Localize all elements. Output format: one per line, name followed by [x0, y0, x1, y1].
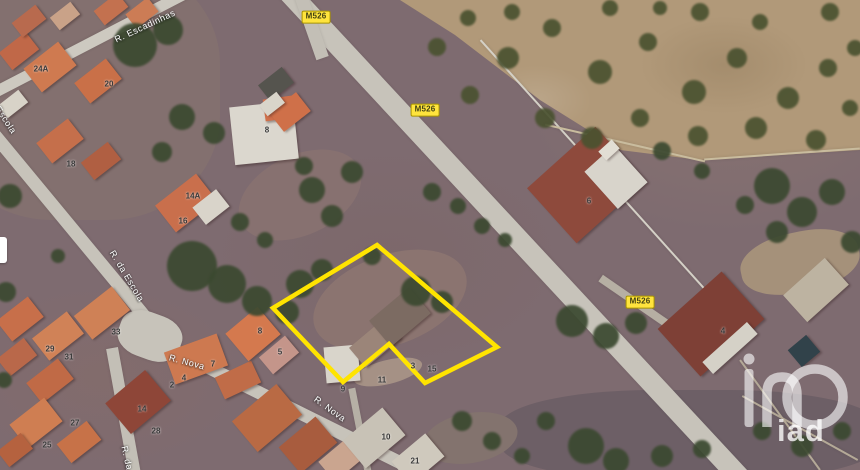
- iad-logo-text: iad: [777, 413, 825, 449]
- house-number: 4: [721, 327, 725, 336]
- house-number: 14A: [186, 192, 201, 201]
- house-number: 24A: [34, 65, 49, 74]
- road-badge: M526: [411, 104, 440, 117]
- street-label: R. da Escola: [108, 248, 147, 303]
- house-number: 9: [341, 385, 345, 394]
- house-number: 18: [67, 160, 76, 169]
- house-number: 14: [138, 405, 147, 414]
- house-number: 3: [411, 362, 415, 371]
- street-label: R. da: [119, 445, 134, 470]
- partial-map-label: [0, 237, 7, 263]
- house-number: 21: [411, 457, 420, 466]
- house-number: 25: [43, 441, 52, 450]
- house-number: 20: [105, 80, 114, 89]
- house-number: 7: [211, 360, 215, 369]
- house-number: 5: [278, 348, 282, 357]
- house-number: 6: [587, 197, 591, 206]
- house-number: 8: [265, 126, 269, 135]
- street-label: R. Nova: [312, 394, 348, 424]
- house-number: 10: [382, 433, 391, 442]
- street-label: Escola: [0, 104, 19, 135]
- iad-watermark: iad: [735, 345, 860, 470]
- house-number: 29: [46, 345, 55, 354]
- house-number: 2: [170, 381, 174, 390]
- street-label: R. Escadinhas: [113, 8, 177, 45]
- house-number: 33: [112, 328, 121, 337]
- house-number: 27: [71, 419, 80, 428]
- house-number: 28: [152, 427, 161, 436]
- house-number: 4: [182, 374, 186, 383]
- house-number: 16: [179, 217, 188, 226]
- satellite-map[interactable]: M526M526M526R. EscadinhasEscolaR. da Esc…: [0, 0, 860, 470]
- house-number: 11: [378, 376, 386, 385]
- house-number: 31: [65, 353, 74, 362]
- house-number: 8: [258, 327, 262, 336]
- street-label: R. Nova: [168, 352, 206, 371]
- road-badge: M526: [302, 11, 331, 24]
- house-number: 15: [428, 365, 437, 374]
- labels-layer: M526M526M526R. EscadinhasEscolaR. da Esc…: [0, 0, 860, 470]
- road-badge: M526: [626, 296, 655, 309]
